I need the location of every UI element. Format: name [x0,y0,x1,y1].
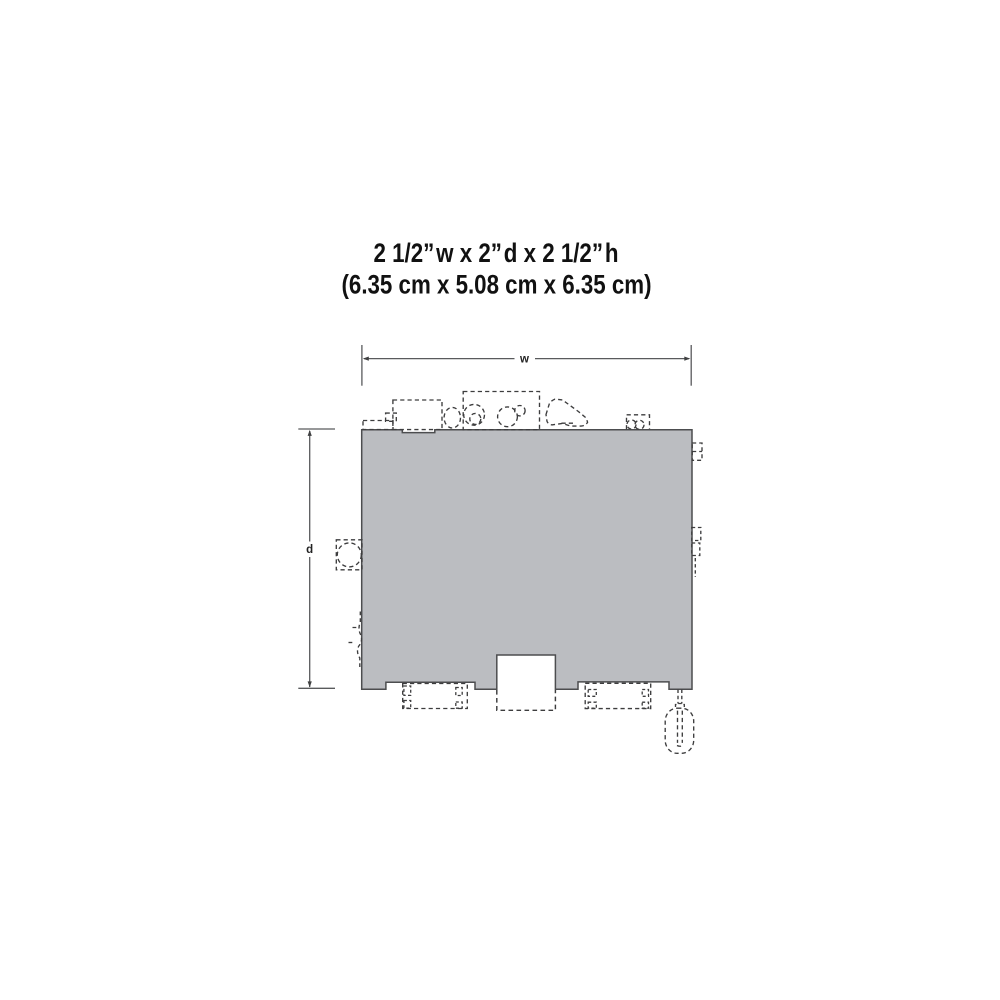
svg-text:w: w [519,354,529,366]
svg-text:d: d [306,544,313,556]
svg-text:(6.35 cm x 5.08 cm x 6.35 cm): (6.35 cm x 5.08 cm x 6.35 cm) [342,270,652,300]
svg-text:2 1/2” w x 2” d x 2 1/2” h: 2 1/2” w x 2” d x 2 1/2” h [374,238,619,268]
